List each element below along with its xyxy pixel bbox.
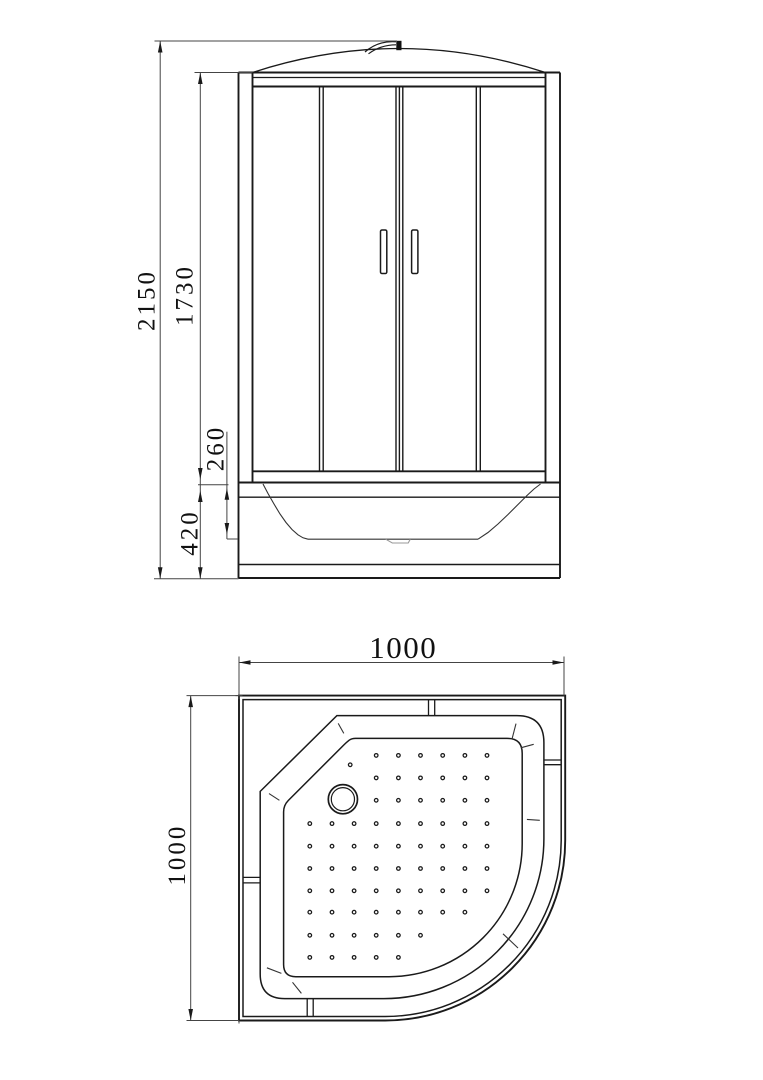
svg-text:2150: 2150 bbox=[134, 269, 161, 331]
svg-text:1730: 1730 bbox=[172, 264, 199, 326]
svg-text:1000: 1000 bbox=[164, 824, 191, 886]
svg-text:260: 260 bbox=[203, 425, 230, 472]
svg-text:1000: 1000 bbox=[369, 630, 437, 665]
svg-text:420: 420 bbox=[177, 509, 204, 556]
